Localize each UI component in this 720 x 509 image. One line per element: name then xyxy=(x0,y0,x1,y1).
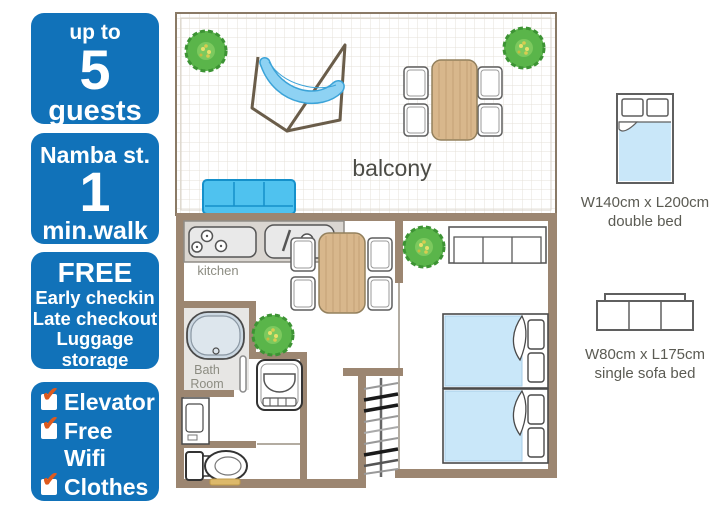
double-bed-size: W140cm x L200cm xyxy=(570,193,720,212)
free-title: FREE xyxy=(31,257,159,288)
bathroom-label-line1: Bath xyxy=(194,363,220,377)
amenity-label: Elevator xyxy=(64,389,155,416)
washing-machine-icon xyxy=(257,360,302,410)
bathroom-label-line2: Room xyxy=(190,377,223,391)
page: balcony xyxy=(0,0,720,509)
double-bed-label: double bed xyxy=(570,212,720,231)
checkbox-icon: ✔ xyxy=(41,423,57,439)
guests-word: guests xyxy=(31,95,159,127)
check-icon: ✔ xyxy=(42,414,59,434)
double-bed-1 xyxy=(443,314,548,388)
guests-number: 5 xyxy=(31,45,159,95)
badge-guests: up to 5 guests xyxy=(31,13,159,124)
legend-double-bed: W140cm x L200cm double bed xyxy=(570,92,720,231)
free-item: Late checkout xyxy=(31,309,159,330)
amenity-row: ✔ Clothes dryer xyxy=(31,474,159,509)
bathroom: Bath Room xyxy=(184,308,249,392)
free-item: Luggage storage xyxy=(31,329,159,370)
plant-icon xyxy=(404,227,444,267)
plant-icon xyxy=(186,31,226,71)
station-walk: min.walk xyxy=(31,216,159,246)
badge-amenities: ✔ Elevator ✔ Free Wifi ✔ Clothes dryer xyxy=(31,382,159,501)
balcony-sofa-icon xyxy=(203,180,295,214)
checkbox-icon: ✔ xyxy=(41,479,57,495)
amenity-row: ✔ Elevator xyxy=(31,389,159,416)
bathtub-icon xyxy=(187,312,244,359)
balcony: balcony xyxy=(176,13,556,215)
check-icon: ✔ xyxy=(42,385,59,405)
stairs-icon xyxy=(364,378,398,477)
toilet-icon xyxy=(186,451,247,485)
bedroom xyxy=(404,227,548,463)
badge-station: Namba st. 1 min.walk xyxy=(31,133,159,244)
amenity-label: Clothes dryer xyxy=(64,474,156,509)
kitchen-label: kitchen xyxy=(197,263,238,278)
bathroom-door xyxy=(240,356,246,392)
plant-icon xyxy=(504,28,544,68)
bedroom-sofa-icon xyxy=(449,227,546,263)
station-minutes: 1 xyxy=(31,168,159,216)
free-item: Early checkin xyxy=(31,288,159,309)
checkbox-icon: ✔ xyxy=(41,394,57,410)
plant-icon xyxy=(253,315,293,355)
amenity-row: ✔ Free Wifi xyxy=(31,418,159,472)
check-icon: ✔ xyxy=(42,470,59,490)
vanity-sink-icon xyxy=(182,398,209,444)
double-bed-icon xyxy=(614,92,676,186)
balcony-label: balcony xyxy=(352,155,432,181)
sofa-bed-label: single sofa bed xyxy=(570,364,720,383)
badge-free-services: FREE Early checkin Late checkout Luggage… xyxy=(31,252,159,369)
sofa-bed-size: W80cm x L175cm xyxy=(570,345,720,364)
sofa-bed-icon xyxy=(593,292,697,338)
legend-sofa-bed: W80cm x L175cm single sofa bed xyxy=(570,292,720,383)
living-dining-set xyxy=(291,233,392,313)
amenity-label: Free Wifi xyxy=(64,418,156,472)
double-bed-2 xyxy=(443,389,548,463)
